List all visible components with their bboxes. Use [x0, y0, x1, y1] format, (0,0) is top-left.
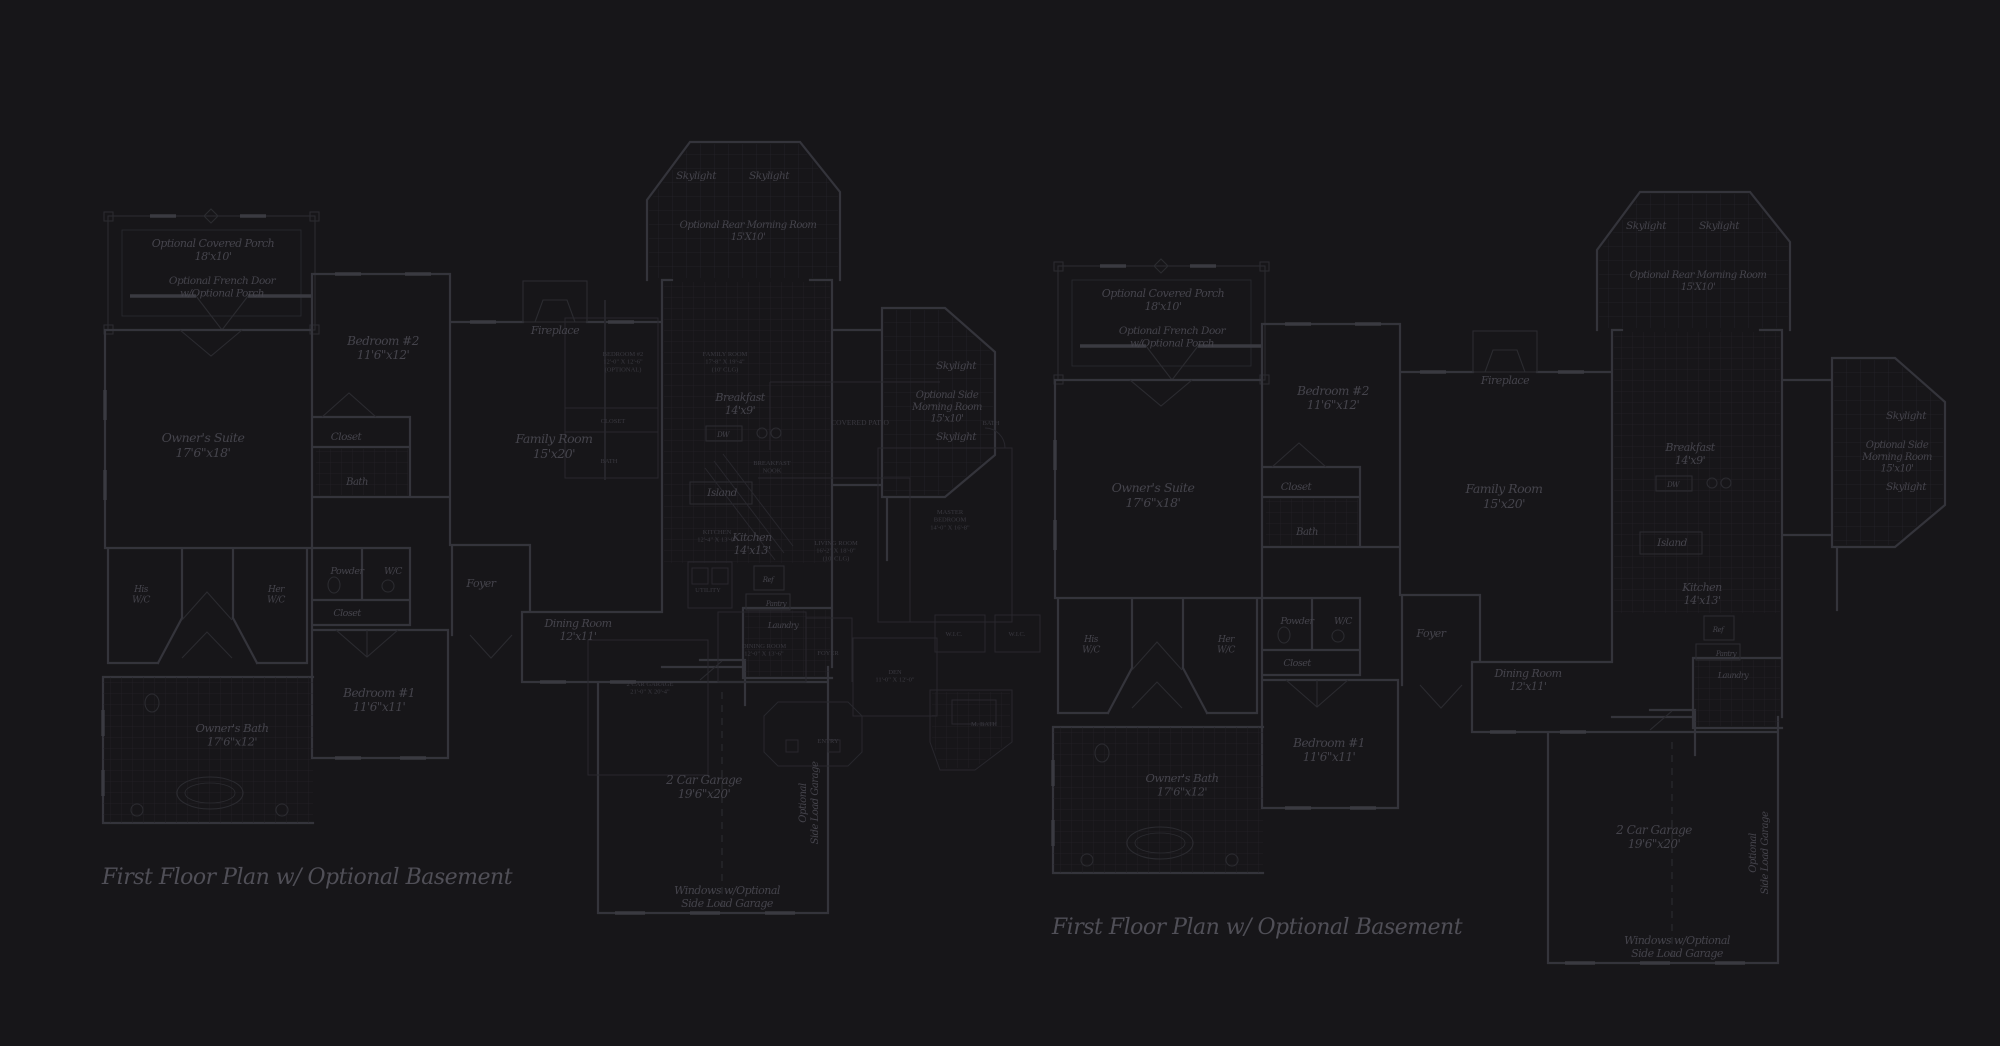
porch-label: Optional Covered Porch18'x10' — [152, 237, 275, 263]
skylight-side-bottom-label: Skylight — [936, 431, 977, 443]
floor-plan-page: Optional Covered Porch18'x10'Optional Fr… — [0, 0, 2000, 1046]
ovl-wic-right-label: W.I.C. — [1009, 631, 1026, 638]
french-door-label: Optional French Doorw/Optional Porch — [169, 275, 277, 299]
closet-hall-label: Closet — [333, 608, 361, 619]
bedroom2-label: Bedroom #211'6"x12' — [1296, 384, 1369, 412]
owners-suite-label: Owner's Suite17'6"x18' — [162, 430, 245, 460]
ovl-foyer-label: FOYER — [817, 650, 839, 657]
family-room-label: Family Room15'x20' — [1465, 481, 1543, 511]
skylight-side-top-label: Skylight — [1886, 410, 1927, 422]
kitchen-label: Kitchen14'x13' — [731, 531, 772, 557]
ovl-entry-label: ENTRY — [817, 738, 839, 745]
island-label: Island — [706, 487, 737, 499]
porch-label: Optional Covered Porch18'x10' — [1102, 287, 1225, 313]
plan-caption: First Floor Plan w/ Optional Basement — [1051, 915, 1463, 940]
fireplace-label: Fireplace — [530, 324, 580, 337]
garage-label: 2 Car Garage19'6"x20' — [665, 773, 742, 801]
dining-room-label: Dining Room12'x11' — [1493, 667, 1561, 693]
overlay-washer — [692, 568, 708, 584]
ref-label: Ref — [762, 576, 775, 584]
overlay-dryer — [712, 568, 728, 584]
plan-caption: First Floor Plan w/ Optional Basement — [101, 865, 513, 890]
wc-label: W/C — [1334, 617, 1352, 627]
closet-hall-label: Closet — [1283, 658, 1311, 669]
skylight-rear-right-label: Skylight — [749, 170, 790, 182]
fireplace-label: Fireplace — [1480, 374, 1530, 387]
ovl-master-bath-entry-label: BATH — [983, 420, 1000, 427]
pantry-label: Pantry — [1715, 650, 1738, 658]
ovl-kitchen-label: KITCHEN12'-4" X 13'-0" — [697, 529, 737, 544]
ovl-covered-patio-label: COVERED PATIO — [831, 418, 889, 427]
island-label: Island — [1656, 537, 1687, 549]
wc-label: W/C — [384, 567, 402, 577]
skylight-rear-left-label: Skylight — [676, 170, 717, 182]
his-wc-label: HisW/C — [132, 585, 150, 606]
closet-bedroom2-label: Closet — [331, 431, 363, 443]
laundry-label: Laundry — [1717, 671, 1749, 680]
ovl-den-label: DEN11'-0" X 12'-0" — [875, 669, 915, 684]
ovl-wic-left-label: W.I.C. — [946, 631, 963, 638]
skylight-side-top-label: Skylight — [936, 360, 977, 372]
foyer-label: Foyer — [465, 577, 496, 590]
garage-label: 2 Car Garage19'6"x20' — [1615, 823, 1692, 851]
floor-plan-document: Optional Covered Porch18'x10'Optional Fr… — [0, 0, 2000, 1046]
ovl-bedroom-label: BEDROOM #212'-0" X 12'-6"(OPTIONAL) — [603, 351, 644, 373]
skylight-rear-left-label: Skylight — [1626, 220, 1667, 232]
powder-label: Powder — [1279, 616, 1315, 627]
her-wc-label: HerW/C — [267, 585, 285, 606]
overlay-bath-floor — [932, 692, 1010, 768]
dining-room-label: Dining Room12'x11' — [543, 617, 611, 643]
her-wc-label: HerW/C — [1217, 635, 1235, 656]
french-door-label: Optional French Doorw/Optional Porch — [1119, 325, 1227, 349]
left-plan-drawing — [103, 142, 995, 913]
foyer-label: Foyer — [1415, 627, 1446, 640]
pantry-label: Pantry — [765, 600, 788, 608]
overlay-entry-column-left — [786, 740, 798, 752]
owners-suite-label: Owner's Suite17'6"x18' — [1112, 480, 1195, 510]
powder-label: Powder — [329, 566, 365, 577]
skylight-side-bottom-label: Skylight — [1886, 481, 1927, 493]
right-plan-drawing — [1053, 192, 1945, 963]
ref-label: Ref — [1712, 626, 1725, 634]
bath-bedroom2-label: Bath — [1295, 527, 1318, 538]
bedroom1-label: Bedroom #111'6"x11' — [342, 686, 415, 714]
windows-note-label: Windows w/OptionalSide Load Garage — [674, 884, 781, 910]
side-load-garage-label: OptionalSide Load Garage — [1748, 811, 1771, 894]
ovl-master-bath-label: M. BATH — [971, 721, 997, 728]
ovl-master-bedroom-label: MASTERBEDROOM14'-0" X 16'-8" — [930, 509, 970, 531]
kitchen-label: Kitchen14'x13' — [1681, 581, 1722, 607]
ovl-bath-label: BATH — [601, 458, 618, 465]
ovl-garage-label: 2 CAR GARAGE21'-0" X 20'-4" — [627, 681, 674, 696]
ovl-dining-room-label: DINING ROOM12'-0" X 13'-6" — [742, 643, 786, 658]
bedroom2-label: Bedroom #211'6"x12' — [346, 334, 419, 362]
ovl-utility-label: UTILITY — [695, 587, 721, 594]
dw-label: DW — [1666, 481, 1680, 489]
family-room-label: Family Room15'x20' — [515, 431, 593, 461]
laundry-label: Laundry — [767, 621, 799, 630]
dw-label: DW — [716, 431, 730, 439]
bedroom1-label: Bedroom #111'6"x11' — [1292, 736, 1365, 764]
his-wc-label: HisW/C — [1082, 635, 1100, 656]
side-load-garage-label: OptionalSide Load Garage — [798, 761, 821, 844]
skylight-rear-right-label: Skylight — [1699, 220, 1740, 232]
bath-bedroom2-label: Bath — [345, 477, 368, 488]
windows-note-label: Windows w/OptionalSide Load Garage — [1624, 934, 1731, 960]
ovl-closet-label: CLOSET — [601, 418, 626, 425]
closet-bedroom2-label: Closet — [1281, 481, 1313, 493]
